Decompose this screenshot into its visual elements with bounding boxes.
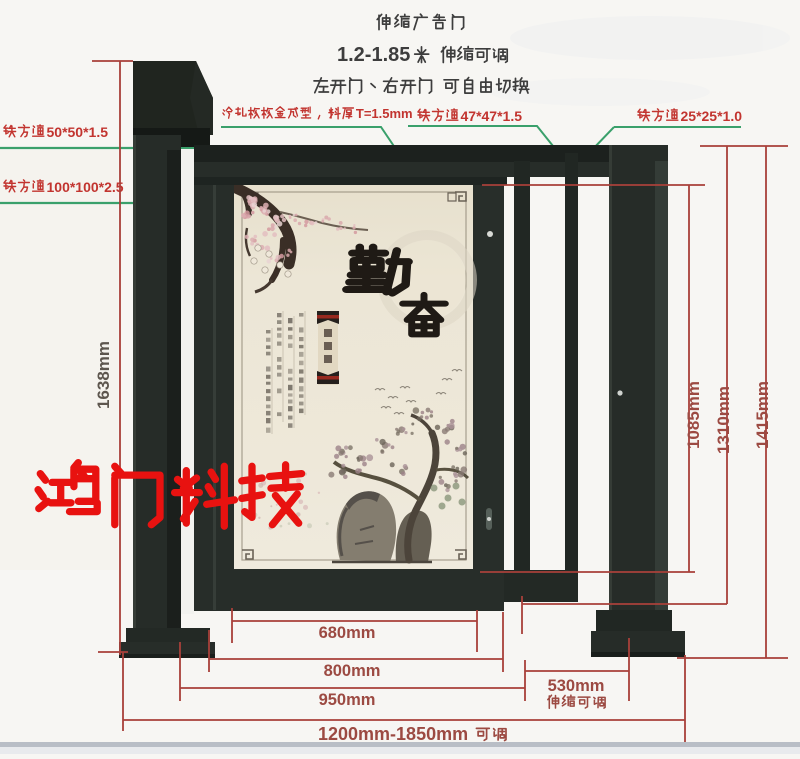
svg-text:800mm: 800mm (324, 662, 381, 680)
svg-text:680mm: 680mm (319, 624, 376, 642)
svg-text:25*25*1.0: 25*25*1.0 (681, 108, 743, 124)
svg-text:1.2-1.85: 1.2-1.85 (337, 44, 410, 66)
svg-text:1638mm: 1638mm (94, 341, 113, 409)
svg-text:50*50*1.5: 50*50*1.5 (47, 124, 109, 140)
svg-text:47*47*1.5: 47*47*1.5 (461, 108, 523, 124)
svg-text:1085mm: 1085mm (684, 381, 703, 449)
svg-text:530mm: 530mm (548, 677, 605, 695)
svg-text:T=1.5mm: T=1.5mm (356, 106, 413, 121)
svg-text:1200mm-1850mm: 1200mm-1850mm (318, 724, 468, 744)
svg-text:1415mm: 1415mm (753, 381, 772, 449)
svg-text:100*100*2.5: 100*100*2.5 (47, 179, 124, 195)
svg-text:1310mm: 1310mm (714, 386, 733, 454)
svg-text:950mm: 950mm (319, 691, 376, 709)
